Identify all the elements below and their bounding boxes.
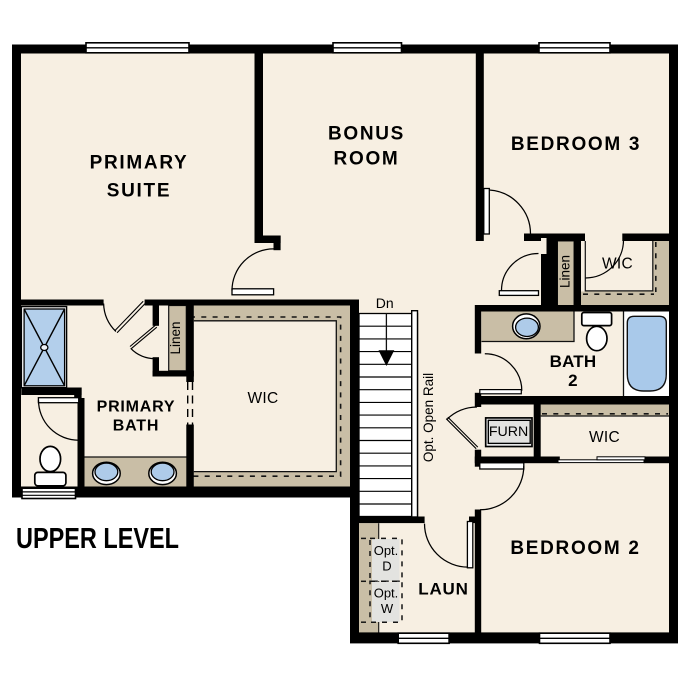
svg-text:Dn: Dn <box>376 295 394 311</box>
svg-text:BATH: BATH <box>113 418 159 435</box>
svg-text:BEDROOM 3: BEDROOM 3 <box>511 134 641 155</box>
svg-text:ROOM: ROOM <box>334 149 400 170</box>
svg-text:WIC: WIC <box>589 429 620 446</box>
svg-text:Linen: Linen <box>558 255 573 288</box>
svg-text:BEDROOM 2: BEDROOM 2 <box>510 538 640 559</box>
svg-text:FURN: FURN <box>489 424 528 440</box>
svg-text:BONUS: BONUS <box>328 124 405 145</box>
svg-text:Opt.: Opt. <box>374 586 399 601</box>
svg-text:W: W <box>381 601 394 616</box>
svg-text:Opt. Open Rail: Opt. Open Rail <box>421 373 436 462</box>
svg-text:WIC: WIC <box>602 256 633 273</box>
svg-text:PRIMARY: PRIMARY <box>90 153 189 174</box>
svg-text:Linen: Linen <box>168 321 183 354</box>
svg-text:SUITE: SUITE <box>107 181 171 202</box>
svg-text:PRIMARY: PRIMARY <box>97 399 176 416</box>
svg-text:Opt.: Opt. <box>374 543 399 558</box>
svg-text:UPPER LEVEL: UPPER LEVEL <box>16 523 179 555</box>
svg-text:WIC: WIC <box>247 390 278 407</box>
svg-text:2: 2 <box>568 371 578 390</box>
svg-text:LAUN: LAUN <box>418 580 468 599</box>
svg-text:BATH: BATH <box>550 352 597 371</box>
svg-text:D: D <box>382 559 391 574</box>
